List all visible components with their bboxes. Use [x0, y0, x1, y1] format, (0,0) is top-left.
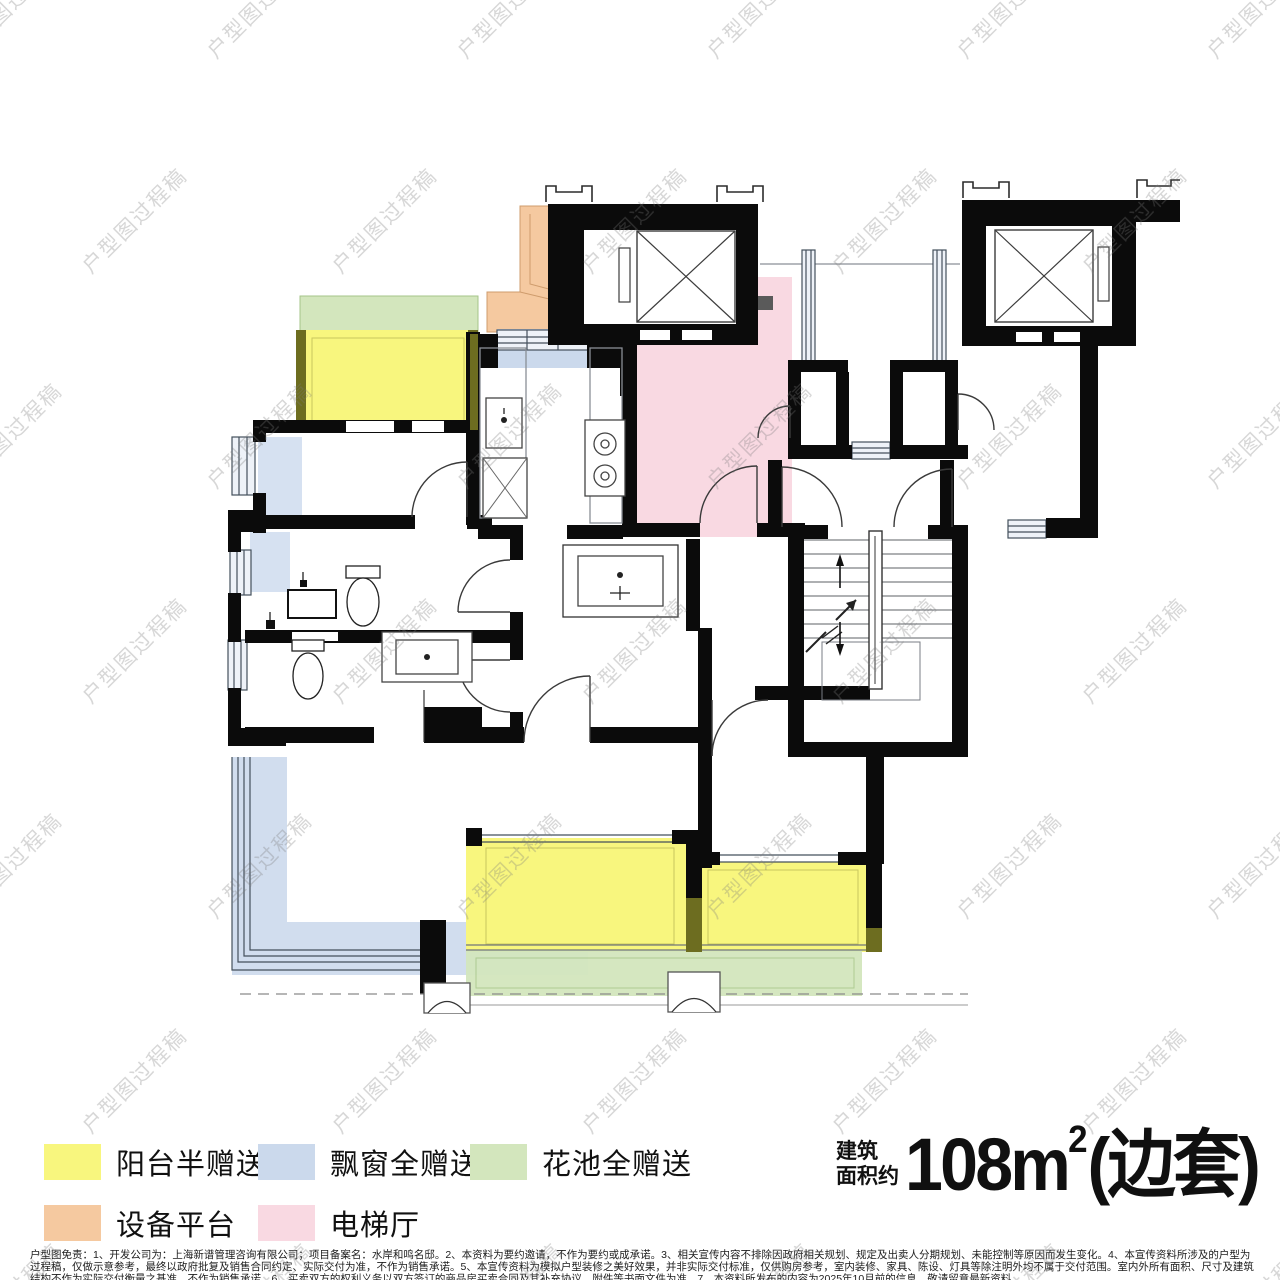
legend-item-elevator-hall: 电梯厅	[258, 1203, 420, 1243]
disclaimer-text: 户型图免责：1、开发公司为：上海新谱管理咨询有限公司；项目备案名：水岸和鸣名邸。…	[30, 1249, 1254, 1280]
legend-label-elevator-hall: 电梯厅	[330, 1202, 420, 1244]
building-area-prefix-line1: 建筑	[836, 1140, 899, 1165]
legend-swatch-bay-window	[258, 1144, 315, 1180]
legend-swatch-elevator-hall	[258, 1205, 315, 1241]
footer: 阳台半赠送 飘窗全赠送 花池全赠送 设备平台 电梯厅 建筑 面积约 108m2(…	[0, 0, 1280, 1280]
legend-swatch-equipment-platform	[44, 1205, 101, 1241]
floorplan-page: 阳台半赠送 飘窗全赠送 花池全赠送 设备平台 电梯厅 建筑 面积约 108m2(…	[0, 0, 1280, 1280]
legend-label-flower-pool: 花池全赠送	[542, 1141, 692, 1183]
legend-swatch-balcony	[44, 1144, 101, 1180]
building-area-suffix: (边套)	[1088, 1123, 1258, 1206]
building-area-prefix: 建筑 面积约	[836, 1140, 899, 1190]
legend-item-bay-window: 飘窗全赠送	[258, 1142, 480, 1182]
legend-label-bay-window: 飘窗全赠送	[330, 1141, 480, 1183]
building-area-value: 108m2(边套)	[905, 1128, 1258, 1202]
legend-label-balcony: 阳台半赠送	[116, 1141, 266, 1183]
legend-label-equipment-platform: 设备平台	[116, 1202, 236, 1244]
legend-swatch-flower-pool	[470, 1144, 527, 1180]
legend-item-equipment-platform: 设备平台	[44, 1203, 236, 1243]
building-area-number: 108m	[905, 1123, 1068, 1206]
legend-item-flower-pool: 花池全赠送	[470, 1142, 692, 1182]
building-area: 建筑 面积约 108m2(边套)	[836, 1128, 1280, 1202]
legend-item-balcony: 阳台半赠送	[44, 1142, 266, 1182]
building-area-superscript: 2	[1068, 1119, 1087, 1161]
building-area-prefix-line2: 面积约	[836, 1165, 899, 1190]
